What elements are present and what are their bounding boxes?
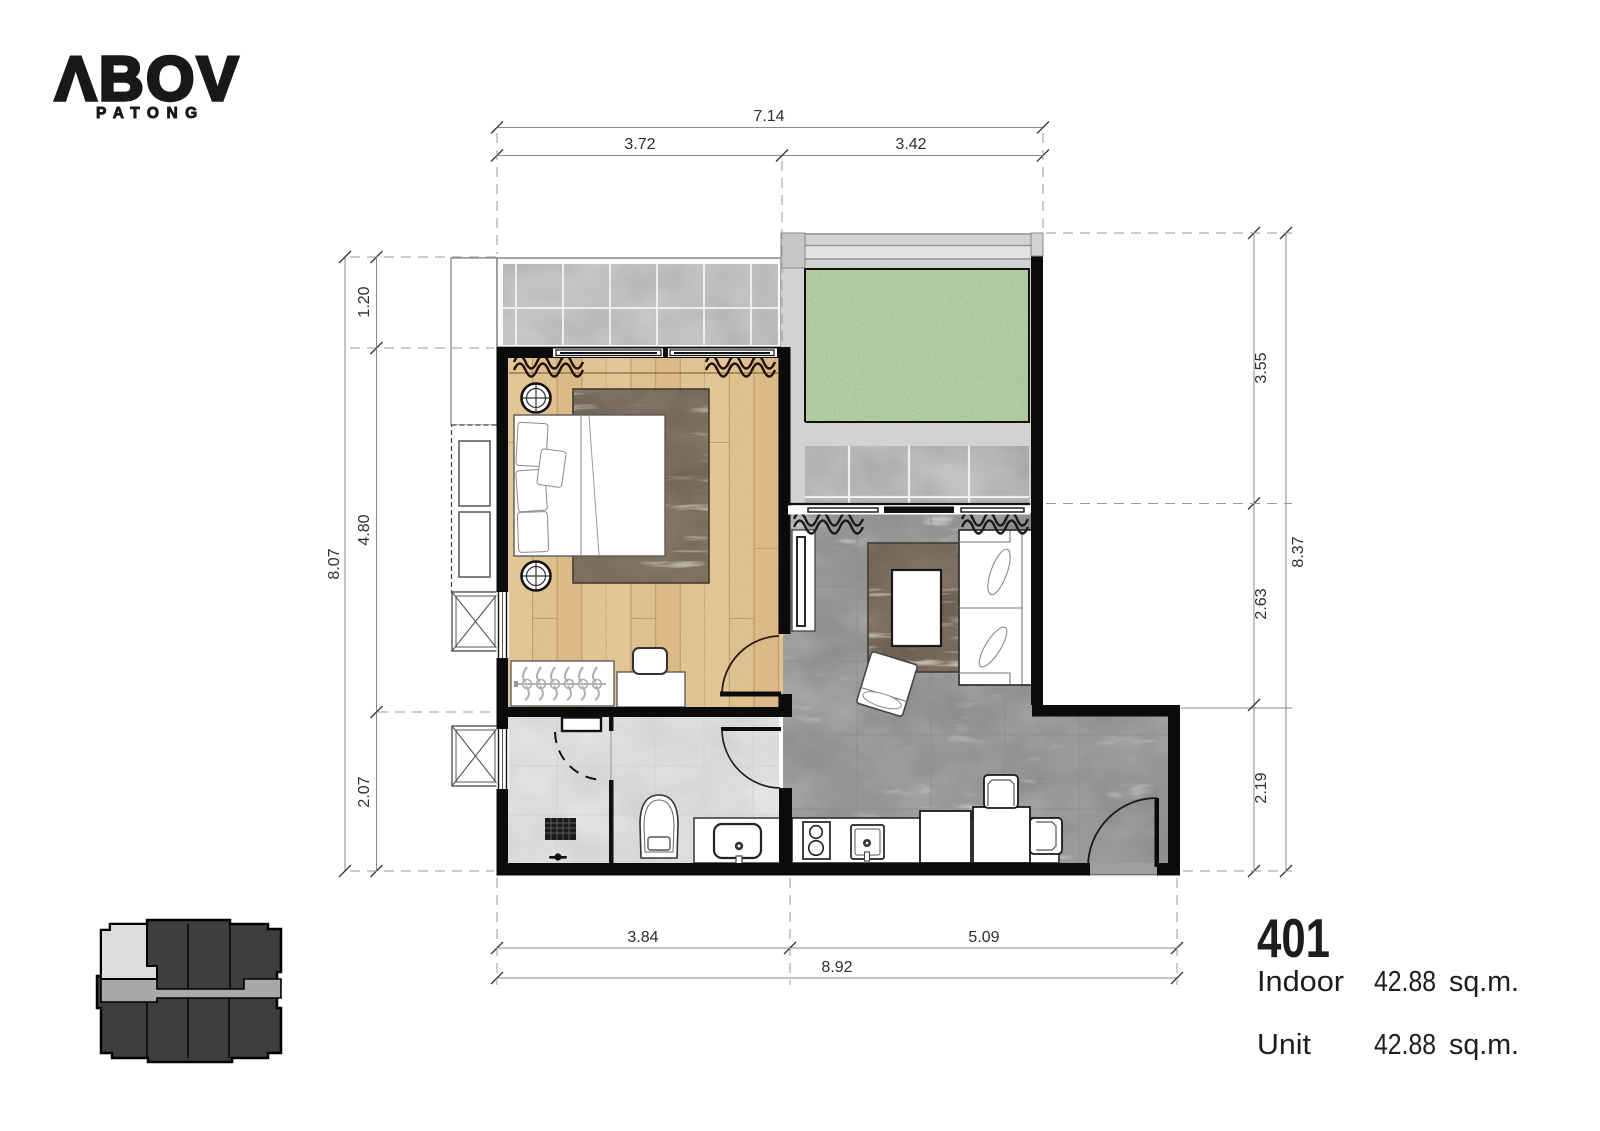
svg-text:Unit: Unit (1257, 1029, 1311, 1061)
svg-text:1.20: 1.20 (356, 286, 373, 317)
svg-text:3.72: 3.72 (624, 136, 655, 153)
svg-text:8.37: 8.37 (1290, 536, 1307, 567)
svg-text:3.55: 3.55 (1253, 352, 1270, 383)
svg-text:401: 401 (1257, 907, 1330, 969)
svg-text:5.09: 5.09 (968, 929, 999, 946)
svg-text:4.80: 4.80 (356, 514, 373, 545)
svg-text:2.07: 2.07 (356, 776, 373, 807)
svg-text:42.88: 42.88 (1374, 966, 1436, 998)
svg-text:3.42: 3.42 (895, 136, 926, 153)
svg-text:42.88: 42.88 (1374, 1029, 1436, 1061)
svg-text:2.19: 2.19 (1253, 772, 1270, 803)
svg-text:Indoor: Indoor (1257, 966, 1344, 998)
svg-text:PATONG: PATONG (96, 105, 205, 122)
svg-text:8.07: 8.07 (326, 548, 343, 579)
svg-text:2.63: 2.63 (1253, 588, 1270, 619)
svg-text:7.14: 7.14 (753, 108, 784, 125)
svg-text:ΛBOV: ΛBOV (55, 45, 241, 114)
svg-text:8.92: 8.92 (821, 959, 852, 976)
svg-text:sq.m.: sq.m. (1449, 1029, 1519, 1061)
svg-text:3.84: 3.84 (627, 929, 658, 946)
svg-text:sq.m.: sq.m. (1449, 966, 1519, 998)
